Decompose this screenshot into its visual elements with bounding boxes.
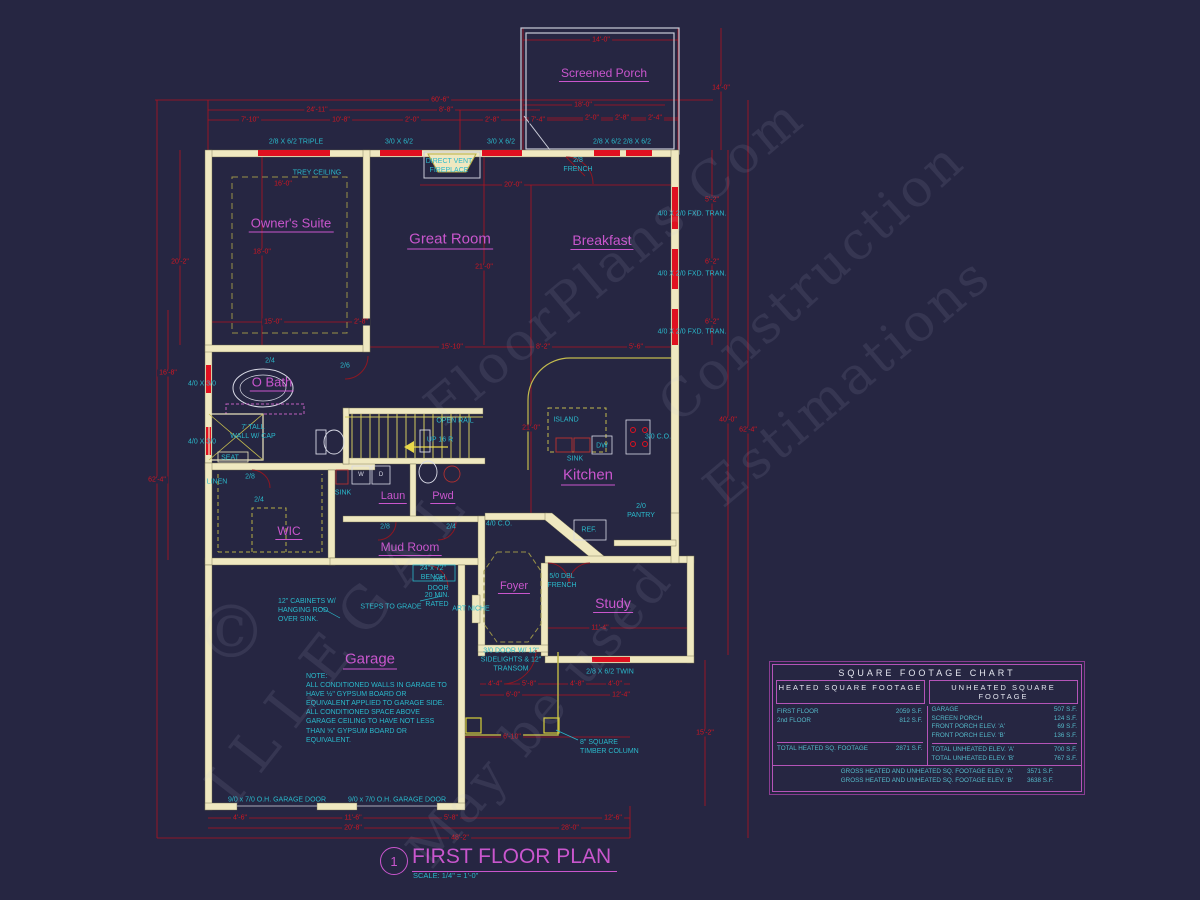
row-label: FRONT PORCH ELEV. 'B' (932, 732, 1005, 741)
chart-title: SQUARE FOOTAGE CHART (773, 665, 1081, 678)
seat-label: SEAT (221, 453, 239, 462)
row-label: TOTAL UNHEATED ELEV. 'B' (932, 755, 1015, 764)
table-row-total: TOTAL UNHEATED ELEV. 'B'767 S.F. (932, 755, 1078, 764)
room-label-kitchen: Kitchen (561, 467, 615, 486)
stairs-label: UP 16 R (427, 435, 453, 444)
plan-number-bubble: 1 (380, 847, 408, 875)
window-label: 2/8 X 6/2 (623, 137, 651, 146)
dim-label: 20'-8" (342, 825, 364, 832)
dim-label: 4'-0" (606, 681, 624, 688)
window-label: 3/0 X 6/2 (487, 137, 515, 146)
fridge-label: REF. (581, 525, 596, 534)
dim-label: 16'-8" (157, 370, 179, 377)
table-row: SCREEN PORCH124 S.F. (932, 715, 1078, 724)
row-value: 3638 S.F. (1027, 777, 1054, 786)
sink-label: SINK (335, 488, 351, 497)
row-value: 2871 S.F. (896, 745, 923, 754)
front-door-note: 3/0 DOOR W/ 12" SIDELIGHTS & 12" TRANSOM (481, 646, 541, 673)
heated-column: FIRST FLOOR2059 S.F. 2nd FLOOR812 S.F. T… (773, 706, 928, 765)
window-label: 4/0 X 2/0 FXD. TRAN. (658, 269, 727, 278)
dim-label: 2'-8" (352, 319, 370, 326)
floor-plan-sheet: Screened Porch Owner's Suite Great Room … (0, 0, 1200, 900)
room-label-owners-suite: Owner's Suite (249, 216, 334, 233)
dim-label: 12'-4" (610, 692, 632, 699)
dim-label: 14'-0" (590, 37, 612, 44)
dim-label: 40'-0" (717, 417, 739, 424)
dim-label: 4'-4" (486, 681, 504, 688)
dim-label: 18'-0" (572, 102, 594, 109)
row-label: GROSS HEATED AND UNHEATED SQ. FOOTAGE EL… (783, 768, 1027, 777)
dim-label: 11'-6" (342, 815, 363, 822)
dim-label: 20'-0" (502, 182, 524, 189)
dim-label: 15'-10" (439, 344, 465, 351)
room-label-o-bath: O Bath (250, 375, 294, 392)
sink-label: SINK (567, 454, 583, 463)
row-value: 700 S.F. (1054, 746, 1077, 755)
table-row: FIRST FLOOR2059 S.F. (777, 708, 923, 717)
row-value: 124 S.F. (1054, 715, 1077, 724)
row-label: GARAGE (932, 706, 959, 715)
fireplace-label: DIRECT VENT FIREPLACE (426, 157, 473, 175)
dryer-label: D (379, 472, 383, 478)
dim-label: 7'-4" (529, 117, 547, 124)
dim-label: 2'-4" (646, 115, 664, 122)
row-value: 136 S.F. (1054, 732, 1077, 741)
dim-label: 62'-4" (146, 477, 168, 484)
room-label-wic: WIC (275, 524, 302, 540)
dim-label: 21'-0" (520, 425, 542, 432)
dim-label: 6'-2" (703, 259, 721, 266)
row-label: FIRST FLOOR (777, 708, 819, 717)
rated-door-label: 20 MIN. RATED (425, 591, 450, 609)
window-label: 3/0 X 6/2 (385, 137, 413, 146)
door-size-label: 2/8 (245, 472, 255, 481)
window-label: 4/0 X 3/0 (188, 379, 216, 388)
dim-label: 12'-6" (602, 815, 624, 822)
island-label: ISLAND (553, 415, 578, 424)
row-value: 69 S.F. (1057, 723, 1077, 732)
room-label-laun: Laun (379, 490, 407, 504)
french-door-label: 5/0 DBL FRENCH (547, 572, 576, 590)
pantry-label: 2/0 PANTRY (627, 502, 655, 520)
window-label: 4/0 X 3/0 (188, 437, 216, 446)
window-label: 2/8 X 6/2 TRIPLE (269, 137, 323, 146)
dim-label: 2'-8" (613, 115, 631, 122)
heated-header: HEATED SQUARE FOOTAGE (776, 680, 925, 704)
door-size-label: 2/4 (265, 356, 275, 365)
row-value: 767 S.F. (1054, 755, 1077, 764)
room-label-foyer: Foyer (498, 580, 530, 594)
dim-label: 60'-6" (429, 97, 451, 104)
washer-label: W (358, 472, 364, 478)
dim-label: 20'-2" (169, 259, 191, 266)
plan-number: 1 (390, 854, 397, 869)
door-size-label: 2/4 (254, 495, 264, 504)
unheated-column: GARAGE507 S.F. SCREEN PORCH124 S.F. FRON… (928, 704, 1082, 765)
dim-label: 10'-8" (330, 117, 352, 124)
row-label: SCREEN PORCH (932, 715, 983, 724)
dim-label: 15'-2" (694, 730, 716, 737)
unheated-header: UNHEATED SQUARE FOOTAGE (929, 680, 1078, 704)
dim-label: 8'-8" (437, 107, 455, 114)
table-row: FRONT PORCH ELEV. 'B'136 S.F. (932, 732, 1078, 741)
row-value: 3571 S.F. (1027, 768, 1054, 777)
dim-label: 28'-0" (559, 825, 581, 832)
art-niche-label: ART NICHE (452, 604, 489, 613)
spacer (777, 725, 923, 739)
gross-section: GROSS HEATED AND UNHEATED SQ. FOOTAGE EL… (773, 766, 1081, 788)
cased-opening-label: 3/0 C.O. (645, 432, 671, 441)
dim-label: 21'-0" (473, 264, 495, 271)
dim-label: 4'-6" (231, 815, 249, 822)
door-size-label: 2/6 (340, 361, 350, 370)
table-row: 2nd FLOOR812 S.F. (777, 717, 923, 726)
cased-opening-label: 4/0 C.O. (486, 519, 512, 528)
dim-label: 5'-6" (627, 344, 645, 351)
dim-label: 18'-0" (251, 249, 273, 256)
row-label: TOTAL UNHEATED ELEV. 'A' (932, 746, 1015, 755)
dishwasher-label: DW (596, 441, 608, 450)
trey-ceiling-label: TREY CEILING (293, 168, 342, 177)
row-label: FRONT PORCH ELEV. 'A' (932, 723, 1005, 732)
table-row-total: TOTAL UNHEATED ELEV. 'A'700 S.F. (932, 743, 1078, 755)
square-footage-chart: SQUARE FOOTAGE CHART HEATED SQUARE FOOTA… (772, 664, 1082, 792)
row-label: GROSS HEATED AND UNHEATED SQ. FOOTAGE EL… (783, 777, 1027, 786)
table-row: FRONT PORCH ELEV. 'A'69 S.F. (932, 723, 1078, 732)
window-label: 2/8 X 6/2 (593, 137, 621, 146)
linen-label: LINEN (207, 477, 228, 486)
wall-note: 7' TALL WALL W/ CAP (230, 423, 275, 441)
dim-label: 16'-0" (272, 181, 294, 188)
dim-label: 15'-0" (262, 319, 284, 326)
dim-label: 2'-0" (583, 115, 601, 122)
dim-label: 7'-10" (239, 117, 261, 124)
row-label: TOTAL HEATED SQ. FOOTAGE (777, 745, 868, 754)
watermark-copyright: © (195, 590, 267, 674)
row-value: 507 S.F. (1054, 706, 1077, 715)
dim-label: 2'-0" (403, 117, 421, 124)
table-row: GARAGE507 S.F. (932, 706, 1078, 715)
row-value: 812 S.F. (899, 717, 922, 726)
dim-label: 24'-11" (304, 107, 329, 114)
table-row-total: TOTAL HEATED SQ. FOOTAGE2871 S.F. (777, 742, 923, 754)
dim-label: 14'-0" (710, 85, 732, 92)
timber-column-label: 8" SQUARE TIMBER COLUMN (580, 738, 639, 756)
table-row-gross: GROSS HEATED AND UNHEATED SQ. FOOTAGE EL… (783, 768, 1071, 777)
room-label-great-room: Great Room (407, 231, 493, 250)
room-label-screened-porch: Screened Porch (559, 66, 649, 82)
row-label: 2nd FLOOR (777, 717, 811, 726)
row-value: 2059 S.F. (896, 708, 923, 717)
door-label: 2/8 FRENCH (563, 156, 592, 174)
table-row-gross: GROSS HEATED AND UNHEATED SQ. FOOTAGE EL… (783, 777, 1071, 786)
dim-label: 2'-8" (483, 117, 501, 124)
